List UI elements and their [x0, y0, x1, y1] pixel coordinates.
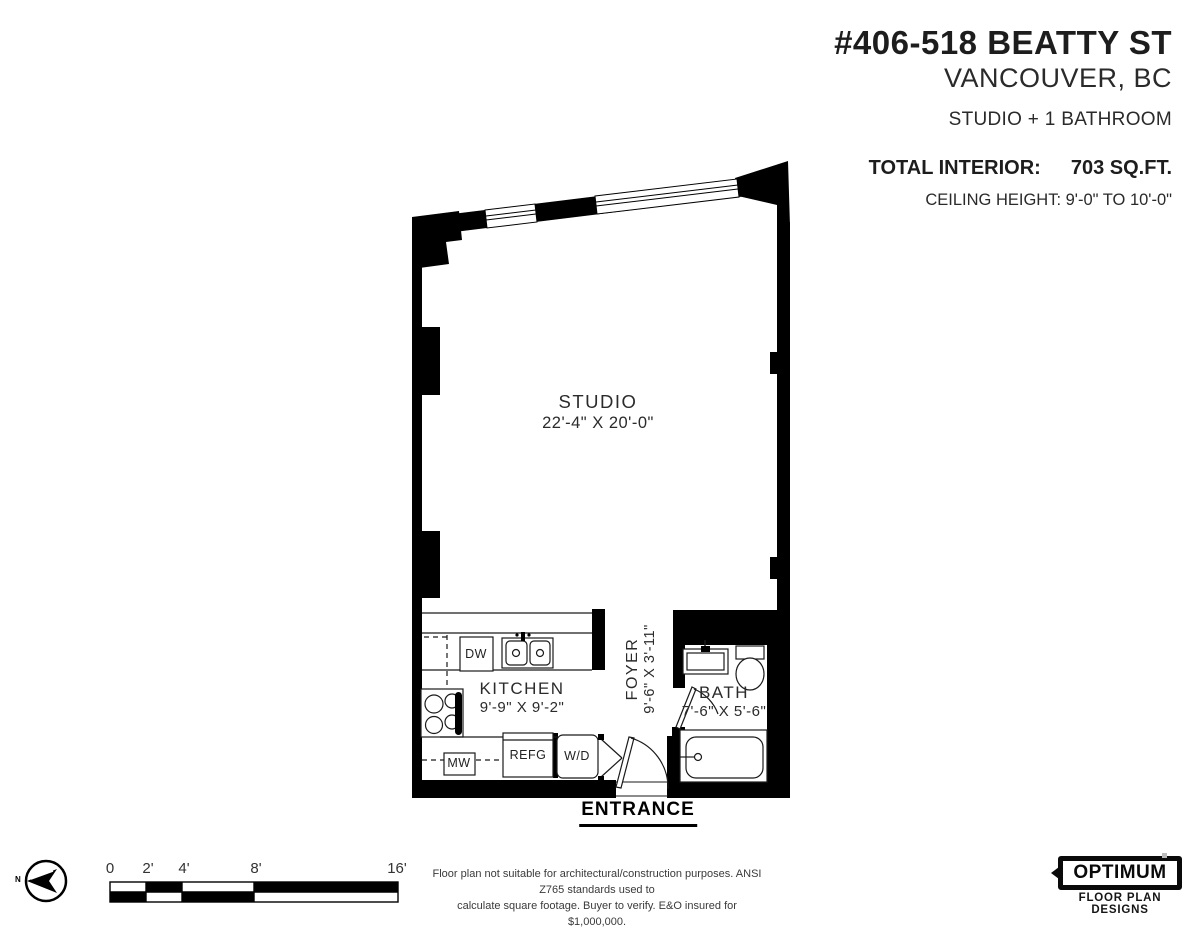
- washer-dryer-label: W/D: [564, 749, 590, 765]
- scale-label-4: 4': [178, 860, 189, 877]
- refrigerator-label: REFG: [510, 748, 547, 764]
- studio-dimensions: 22'-4" X 20'-0": [542, 413, 654, 434]
- kitchen-name: KITCHEN: [479, 678, 564, 699]
- bath-dimensions: 7'-6" X 5'-6": [682, 703, 767, 722]
- window-large: [595, 179, 739, 214]
- studio-name: STUDIO: [542, 390, 654, 413]
- foyer-dimensions: 9'-6" X 3'-11": [642, 624, 658, 713]
- sink-faucet: [521, 632, 525, 641]
- ceiling-height: CEILING HEIGHT: 9'-0" TO 10'-0": [834, 191, 1172, 210]
- kitchen-dimensions: 9'-9" X 9'-2": [479, 699, 564, 718]
- scale-label-0: 0: [106, 860, 114, 877]
- dishwasher-label: DW: [465, 647, 487, 663]
- disclaimer-line-2: calculate square footage. Buyer to verif…: [427, 899, 767, 931]
- disclaimer-text: Floor plan not suitable for architectura…: [427, 867, 767, 931]
- windows: [485, 179, 739, 228]
- logo-frame: OPTIMUM: [1058, 856, 1182, 890]
- room-label-kitchen: KITCHEN 9'-9" X 9'-2": [479, 678, 564, 718]
- tub-faucet: [695, 754, 702, 761]
- city-subtitle: VANCOUVER, BC: [834, 63, 1172, 94]
- north-label: N: [15, 875, 21, 884]
- total-interior-label: TOTAL INTERIOR:: [869, 157, 1041, 180]
- bath-name: BATH: [682, 682, 767, 703]
- total-interior-row: TOTAL INTERIOR: 703 SQ.FT.: [834, 157, 1172, 180]
- address-title: #406-518 BEATTY ST: [834, 26, 1172, 61]
- room-label-bath: BATH 7'-6" X 5'-6": [682, 682, 767, 722]
- north-compass: [26, 861, 66, 901]
- room-label-studio: STUDIO 22'-4" X 20'-0": [542, 390, 654, 434]
- entrance-label: ENTRANCE: [579, 799, 697, 827]
- tape-measure-tip-icon: [1051, 864, 1063, 882]
- disclaimer-line-1: Floor plan not suitable for architectura…: [427, 867, 767, 899]
- window-small: [485, 204, 537, 228]
- entrance-door-leaf: [616, 737, 634, 788]
- scale-label-2: 2': [142, 860, 153, 877]
- bifold-door: [601, 739, 622, 758]
- tape-measure-clip-icon: [1162, 853, 1167, 858]
- scale-label-8: 8': [250, 860, 261, 877]
- vanity-faucet: [701, 646, 710, 652]
- room-label-foyer: FOYER 9'-6" X 3'-11": [624, 624, 658, 713]
- unit-type: STUDIO + 1 BATHROOM: [834, 109, 1172, 131]
- total-interior-value: 703 SQ.FT.: [1071, 157, 1172, 180]
- entrance-door-swing: [631, 738, 668, 789]
- logo-subtitle: FLOOR PLAN DESIGNS: [1058, 892, 1182, 916]
- scale-label-16: 16': [387, 860, 407, 877]
- logo-name: OPTIMUM: [1073, 862, 1166, 884]
- oven-handle: [455, 692, 462, 735]
- title-block: #406-518 BEATTY ST VANCOUVER, BC STUDIO …: [834, 26, 1172, 210]
- company-logo: OPTIMUM FLOOR PLAN DESIGNS: [1058, 856, 1182, 916]
- toilet-tank: [736, 646, 764, 659]
- microwave-label: MW: [447, 756, 470, 772]
- foyer-name: FOYER: [624, 624, 642, 713]
